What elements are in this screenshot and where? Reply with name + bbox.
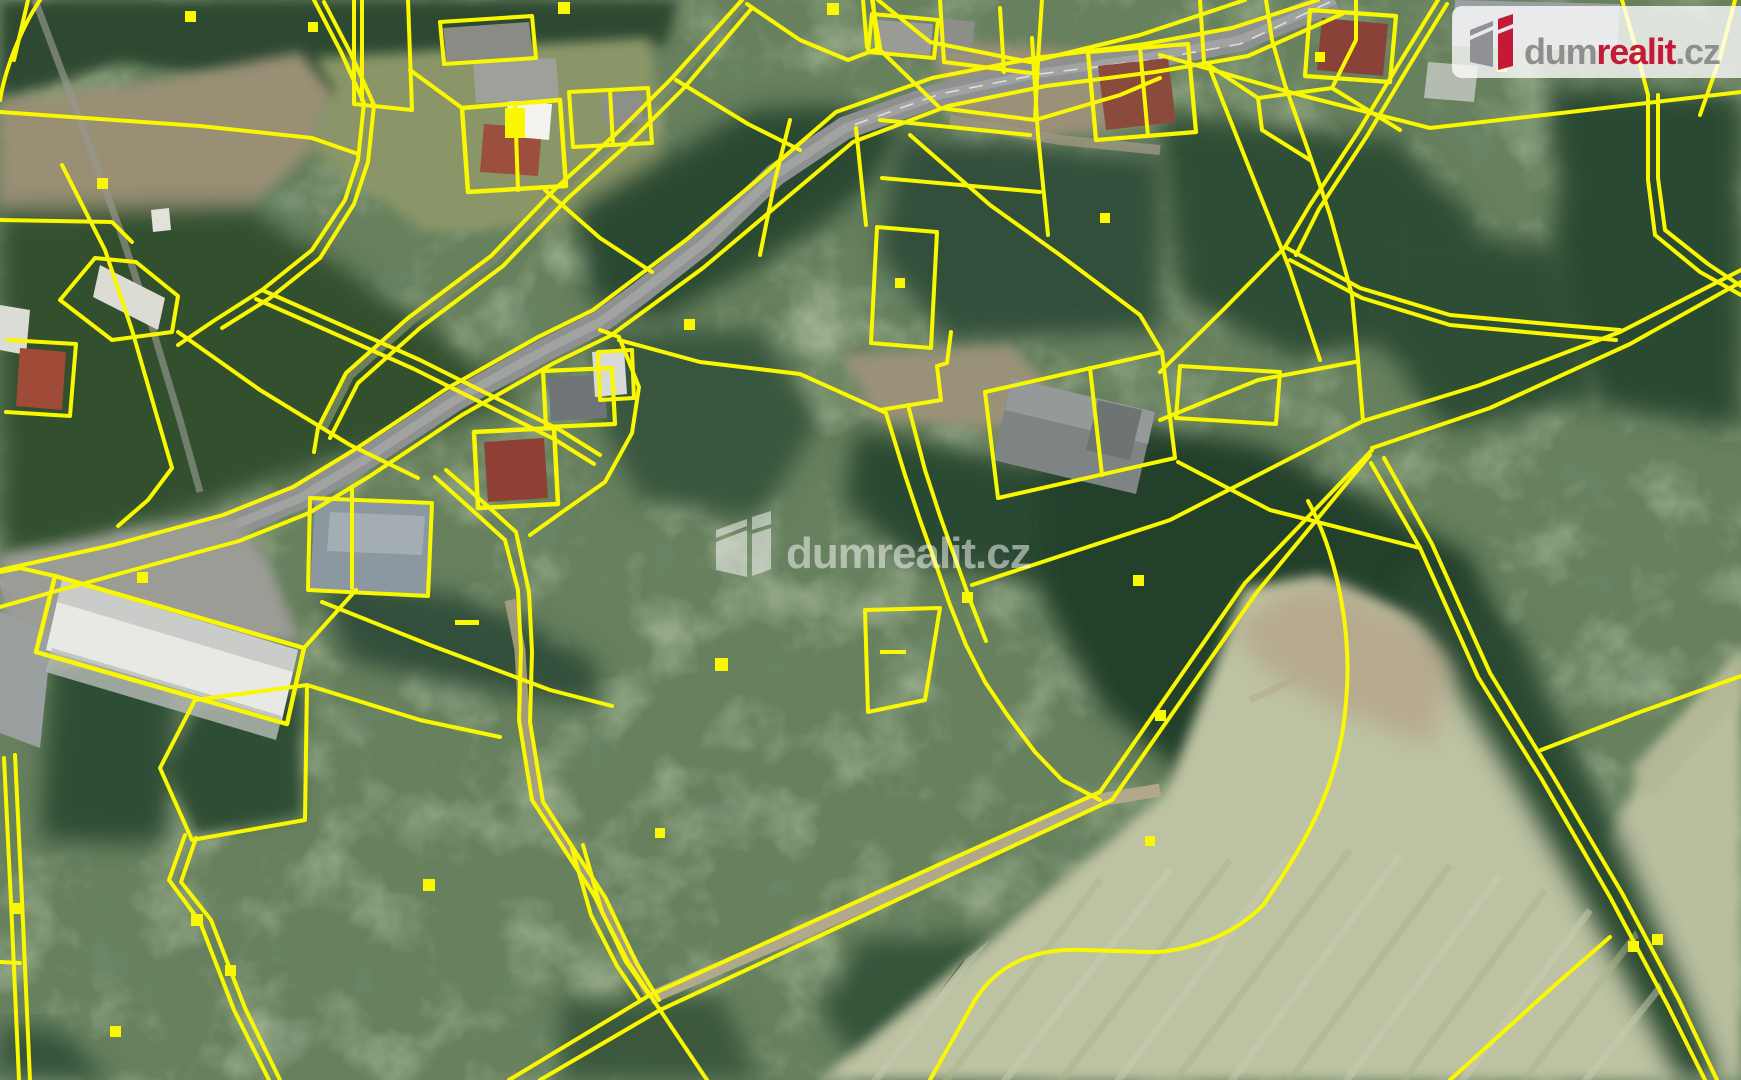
svg-text:dumrealit.cz: dumrealit.cz <box>786 529 1031 578</box>
svg-text:dumrealit.cz: dumrealit.cz <box>1524 31 1720 72</box>
